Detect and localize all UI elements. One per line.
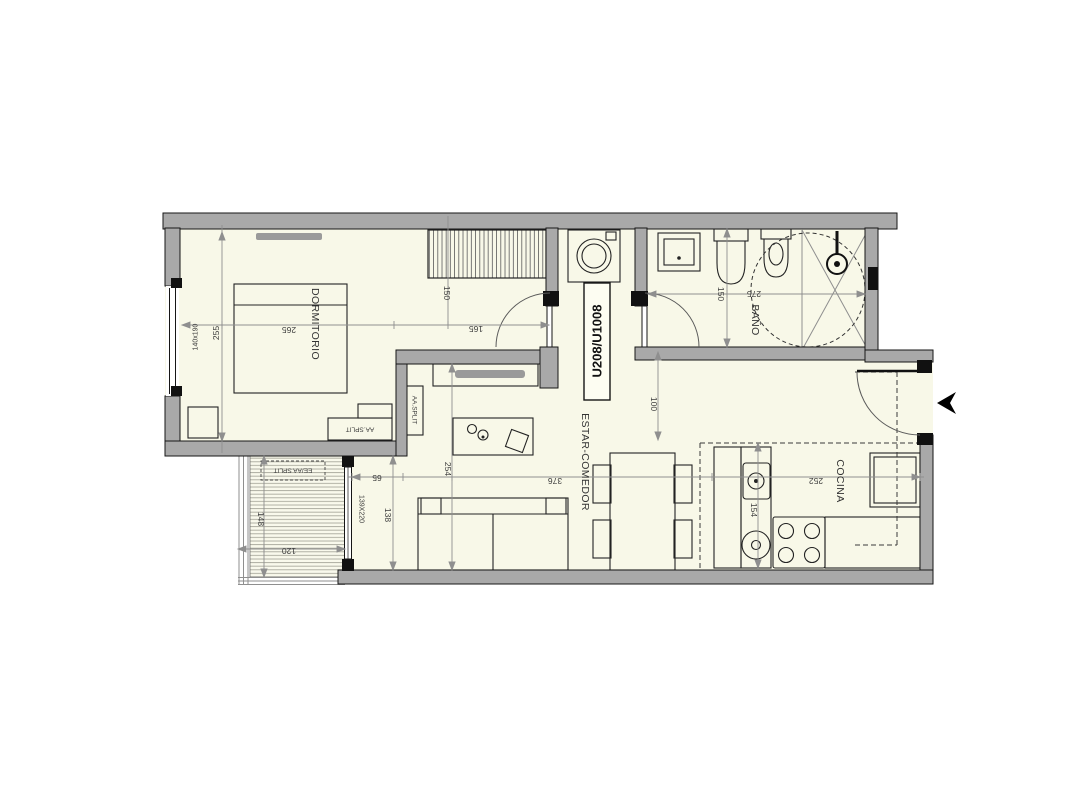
room-label-living: ESTAR-COMEDOR [579,413,591,511]
wall-living-north-east [635,347,878,360]
wall-east-lower [920,435,933,584]
dim-hall-passage: 100 [649,397,659,411]
window-opening [166,286,179,396]
kitchen-sink-drain [754,479,758,483]
duct-marker [868,267,878,290]
dim-kitchen-length: 252 [809,476,823,486]
dim-bath-width: 150 [716,287,726,301]
shower-head-center [834,261,840,267]
dim-bedroom-width: 265 [282,325,296,335]
wall-bedroom-south [165,441,407,456]
dim-bath-length: 275 [747,289,761,299]
wall-north [163,213,897,229]
window-sill-bottom [171,386,182,396]
floor-plan-canvas: DORMITORIO ESTAR-COMEDOR BAÑO COCINA U20… [0,0,1080,810]
ac-split-living-label: AA.SPLIT [411,396,418,425]
entrance-arrow-icon [937,392,956,414]
bedroom-door-leaf [547,306,552,347]
unit-label: U208/U1008 [590,305,605,378]
dim-nook-depth: 138 [383,508,393,522]
room-label-kitchen: COCINA [834,459,846,502]
dim-balcony-depth: 148 [256,512,266,526]
room-label-bathroom: BAÑO [749,304,762,335]
wall-west-lower [165,396,180,442]
window-sill-top [171,278,182,288]
floor-plan-page: DORMITORIO ESTAR-COMEDOR BAÑO COCINA U20… [0,0,1080,810]
ac-split-bedroom-top [358,404,392,418]
dim-bedroom-depth: 255 [211,326,221,340]
ac-split-bedroom-label: AA.SPLIT [346,426,375,433]
dim-balcony-width: 120 [282,546,296,556]
dim-kitchen-depth: 154 [749,503,759,517]
dim-closet: 150 [442,286,452,300]
balcony-door-jamb-bottom [342,559,354,571]
entry-door-jamb-top [917,360,932,373]
dim-bedroom-width-right: 165 [469,324,483,334]
ac-outdoor-label: EE/AA SPLIT [274,467,313,474]
wall-west-upper [165,228,180,286]
dim-nook-offset: 65 [372,473,382,483]
dim-living-depth: 254 [443,462,453,476]
room-label-bedroom: DORMITORIO [309,288,321,360]
headboard-shelf [256,233,322,240]
wall-stub [540,347,558,388]
bathroom-door-leaf [642,306,647,347]
desk-lamp-dot [482,436,485,439]
dim-balcony-door: 139X220 [358,495,365,523]
bath-sink-drain [677,256,681,260]
wall-living-north-west [396,350,558,364]
dim-living-length: 376 [548,476,562,486]
wall-south [338,570,933,584]
wall-living-west [396,350,407,456]
closet [428,230,546,278]
balcony-door-jamb-top [342,456,354,467]
dim-window: 140x190 [193,323,200,350]
tv [455,370,525,378]
